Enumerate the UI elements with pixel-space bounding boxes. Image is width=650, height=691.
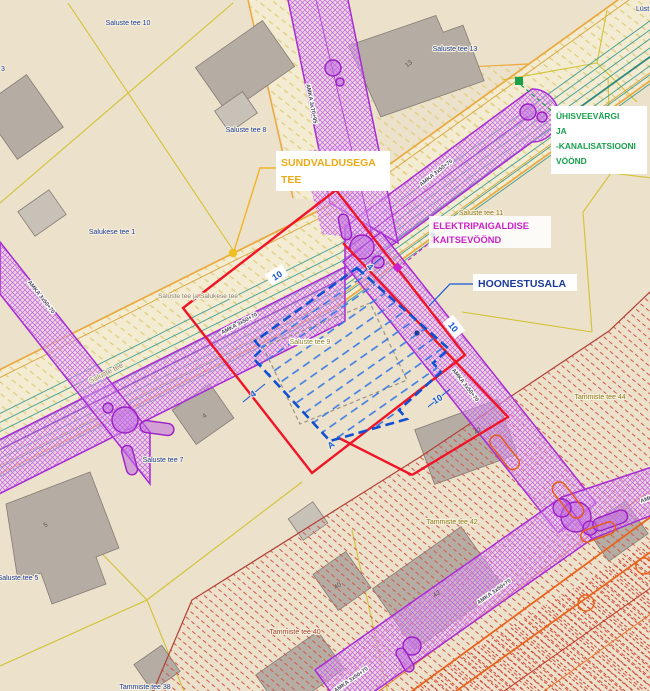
callout-sundvaldusega-tee: SUNDVALDUSEGA TEE [276,151,390,191]
callout-uhisveevargi: ÜHISVEEVÄRGI JA -KANALISATSIOONI VÖÖND [551,106,647,174]
parcel-label: Saluste tee 9 [290,339,331,346]
parcel-label: Tammiste tee 44 [574,394,625,401]
edge-label: Lüst [636,6,649,13]
point-dot [414,330,419,335]
parcel-label: Saluste tee 11 [459,210,503,217]
plan-map: SUNDVALDUSEGA TEE ÜHISVEEVÄRGI JA -KANAL… [0,0,650,691]
parcel-label: Saluste tee 13 [433,46,478,53]
callout-text: JA [556,126,567,136]
parcel-label: Saluste tee 7 [143,457,184,464]
callout-text: -KANALISATSIOONI [556,141,636,151]
callout-text: TEE [281,174,301,186]
callout-text: SUNDVALDUSEGA [281,157,376,169]
parcel-label: Tammiste tee 40 [269,629,320,636]
water-point-square [515,77,523,85]
callout-text: ÜHISVEEVÄRGI [556,111,619,121]
parcel-label: Saluste tee 8 [226,127,267,134]
edge-label: 3 [1,66,5,73]
road-label: Saluste tee ja Salukese tee [158,293,238,300]
map-canvas: SUNDVALDUSEGA TEE ÜHISVEEVÄRGI JA -KANAL… [0,0,650,691]
parcel-label: Saluste tee 5 [0,575,39,582]
callout-text: VÖÖND [556,156,587,166]
parcel-label: Tammiste tee 42 [426,519,477,526]
road-point-dot [229,249,237,257]
callout-text: KAITSEVÖÖND [433,235,501,245]
callout-elektripaigaldise: ELEKTRIPAIGALDISE KAITSEVÖÖND [429,216,551,248]
parcel-label: Saluste tee 10 [106,20,151,27]
parcel-label: Tammiste tee 38 [119,684,170,691]
callout-hoonestusala: HOONESTUSALA [473,274,577,291]
callout-text: HOONESTUSALA [478,278,567,290]
callout-text: ELEKTRIPAIGALDISE [433,221,529,231]
parcel-label: Salukese tee 1 [89,229,135,236]
